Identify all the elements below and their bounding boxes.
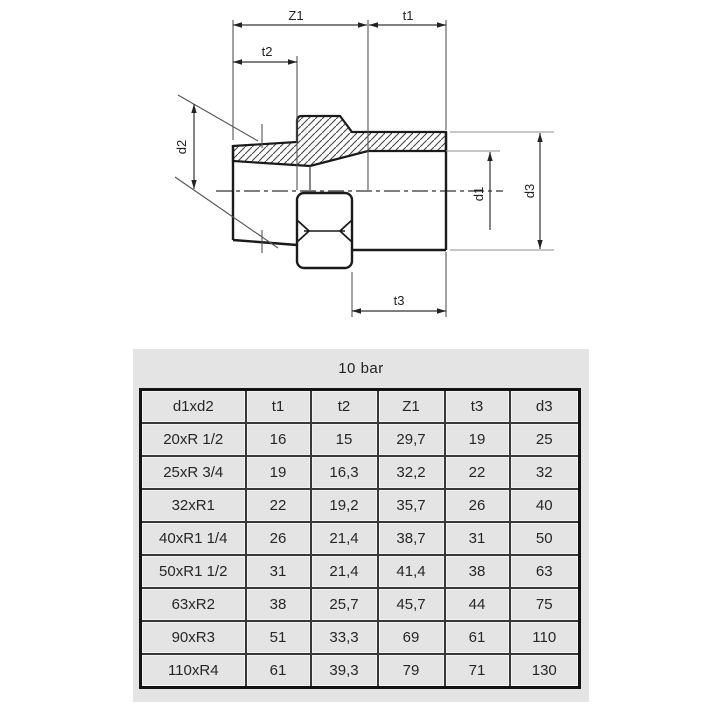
label-d1: d1 bbox=[471, 187, 486, 201]
table-cell: 20xR 1/2 bbox=[141, 423, 246, 456]
table-cell: 40 bbox=[510, 489, 580, 522]
table-cell: 22 bbox=[445, 456, 510, 489]
dimension-d1: d1 bbox=[471, 152, 493, 230]
table-row: 110xR4 61 39,3 79 71 130 bbox=[141, 654, 580, 688]
table-cell: 50 bbox=[510, 522, 580, 555]
table-cell: 75 bbox=[510, 588, 580, 621]
header-row: d1xd2 t1 t2 Z1 t3 d3 bbox=[141, 390, 580, 424]
table-row: 63xR2 38 25,7 45,7 44 75 bbox=[141, 588, 580, 621]
table-cell: 15 bbox=[311, 423, 378, 456]
dimension-z1: Z1 bbox=[233, 8, 367, 28]
table-cell: 63xR2 bbox=[141, 588, 246, 621]
table-cell: 21,4 bbox=[311, 555, 378, 588]
label-t3: t3 bbox=[394, 293, 405, 308]
table-cell: 71 bbox=[445, 654, 510, 688]
dimension-t2: t2 bbox=[233, 44, 297, 65]
table-cell: 19 bbox=[246, 456, 311, 489]
table-cell: 51 bbox=[246, 621, 311, 654]
table-row: 20xR 1/2 16 15 29,7 19 25 bbox=[141, 423, 580, 456]
table-cell: 25,7 bbox=[311, 588, 378, 621]
table-cell: 26 bbox=[246, 522, 311, 555]
table-cell: 32,2 bbox=[378, 456, 445, 489]
col-header-t1: t1 bbox=[246, 390, 311, 424]
table-cell: 38 bbox=[246, 588, 311, 621]
table-row: 25xR 3/4 19 16,3 32,2 22 32 bbox=[141, 456, 580, 489]
table-row: 32xR1 22 19,2 35,7 26 40 bbox=[141, 489, 580, 522]
table-cell: 16,3 bbox=[311, 456, 378, 489]
table-cell: 61 bbox=[246, 654, 311, 688]
table-cell: 22 bbox=[246, 489, 311, 522]
label-t2: t2 bbox=[262, 44, 273, 59]
table-cell: 79 bbox=[378, 654, 445, 688]
page: { "diagram": { "labels": { "z1": "Z1", "… bbox=[0, 0, 720, 720]
table-cell: 19,2 bbox=[311, 489, 378, 522]
table-cell: 16 bbox=[246, 423, 311, 456]
table-body: 20xR 1/2 16 15 29,7 19 25 25xR 3/4 19 16… bbox=[141, 423, 580, 688]
table-cell: 130 bbox=[510, 654, 580, 688]
dimension-t3: t3 bbox=[352, 293, 446, 314]
table-cell: 35,7 bbox=[378, 489, 445, 522]
table-cell: 31 bbox=[246, 555, 311, 588]
table-cell: 90xR3 bbox=[141, 621, 246, 654]
fitting-technical-drawing: Z1 t1 t2 t3 d2 d1 d3 bbox=[0, 0, 720, 345]
drawing-canvas: Z1 t1 t2 t3 d2 d1 d3 bbox=[0, 0, 720, 345]
table-cell: 32xR1 bbox=[141, 489, 246, 522]
col-header-t3: t3 bbox=[445, 390, 510, 424]
col-header-d3: d3 bbox=[510, 390, 580, 424]
table-cell: 38 bbox=[445, 555, 510, 588]
table-cell: 50xR1 1/2 bbox=[141, 555, 246, 588]
pressure-rating-title: 10 bar bbox=[133, 360, 589, 377]
col-header-d1xd2: d1xd2 bbox=[141, 390, 246, 424]
table-cell: 45,7 bbox=[378, 588, 445, 621]
table-header: d1xd2 t1 t2 Z1 t3 d3 bbox=[141, 390, 580, 424]
table-cell: 69 bbox=[378, 621, 445, 654]
spec-panel: 10 bar d1xd2 t1 t2 Z1 t3 d3 20xR 1/2 16 … bbox=[133, 349, 589, 702]
oblique-extension-top bbox=[178, 95, 258, 141]
dimensions-table: d1xd2 t1 t2 Z1 t3 d3 20xR 1/2 16 15 29,7… bbox=[139, 388, 581, 689]
table-cell: 29,7 bbox=[378, 423, 445, 456]
table-cell: 25 bbox=[510, 423, 580, 456]
table-cell: 41,4 bbox=[378, 555, 445, 588]
dimension-t1: t1 bbox=[369, 8, 446, 28]
hatched-body bbox=[233, 116, 446, 166]
table-cell: 25xR 3/4 bbox=[141, 456, 246, 489]
table-cell: 31 bbox=[445, 522, 510, 555]
dimension-d3: d3 bbox=[522, 133, 543, 249]
table-cell: 44 bbox=[445, 588, 510, 621]
table-cell: 110 bbox=[510, 621, 580, 654]
table-cell: 21,4 bbox=[311, 522, 378, 555]
table-cell: 110xR4 bbox=[141, 654, 246, 688]
table-cell: 19 bbox=[445, 423, 510, 456]
table-row: 90xR3 51 33,3 69 61 110 bbox=[141, 621, 580, 654]
table-cell: 61 bbox=[445, 621, 510, 654]
col-header-t2: t2 bbox=[311, 390, 378, 424]
dimension-d2: d2 bbox=[174, 104, 197, 189]
table-cell: 40xR1 1/4 bbox=[141, 522, 246, 555]
table-cell: 38,7 bbox=[378, 522, 445, 555]
table-cell: 39,3 bbox=[311, 654, 378, 688]
table-cell: 32 bbox=[510, 456, 580, 489]
table-cell: 33,3 bbox=[311, 621, 378, 654]
label-t1: t1 bbox=[403, 8, 414, 23]
label-z1: Z1 bbox=[288, 8, 303, 23]
table-cell: 63 bbox=[510, 555, 580, 588]
table-row: 40xR1 1/4 26 21,4 38,7 31 50 bbox=[141, 522, 580, 555]
thread-bottom-edge bbox=[233, 240, 297, 245]
table-row: 50xR1 1/2 31 21,4 41,4 38 63 bbox=[141, 555, 580, 588]
label-d3: d3 bbox=[522, 184, 537, 198]
fitting-cross-section bbox=[233, 116, 446, 190]
label-d2: d2 bbox=[174, 140, 189, 154]
union-nut bbox=[297, 193, 352, 268]
col-header-z1: Z1 bbox=[378, 390, 445, 424]
table-cell: 26 bbox=[445, 489, 510, 522]
